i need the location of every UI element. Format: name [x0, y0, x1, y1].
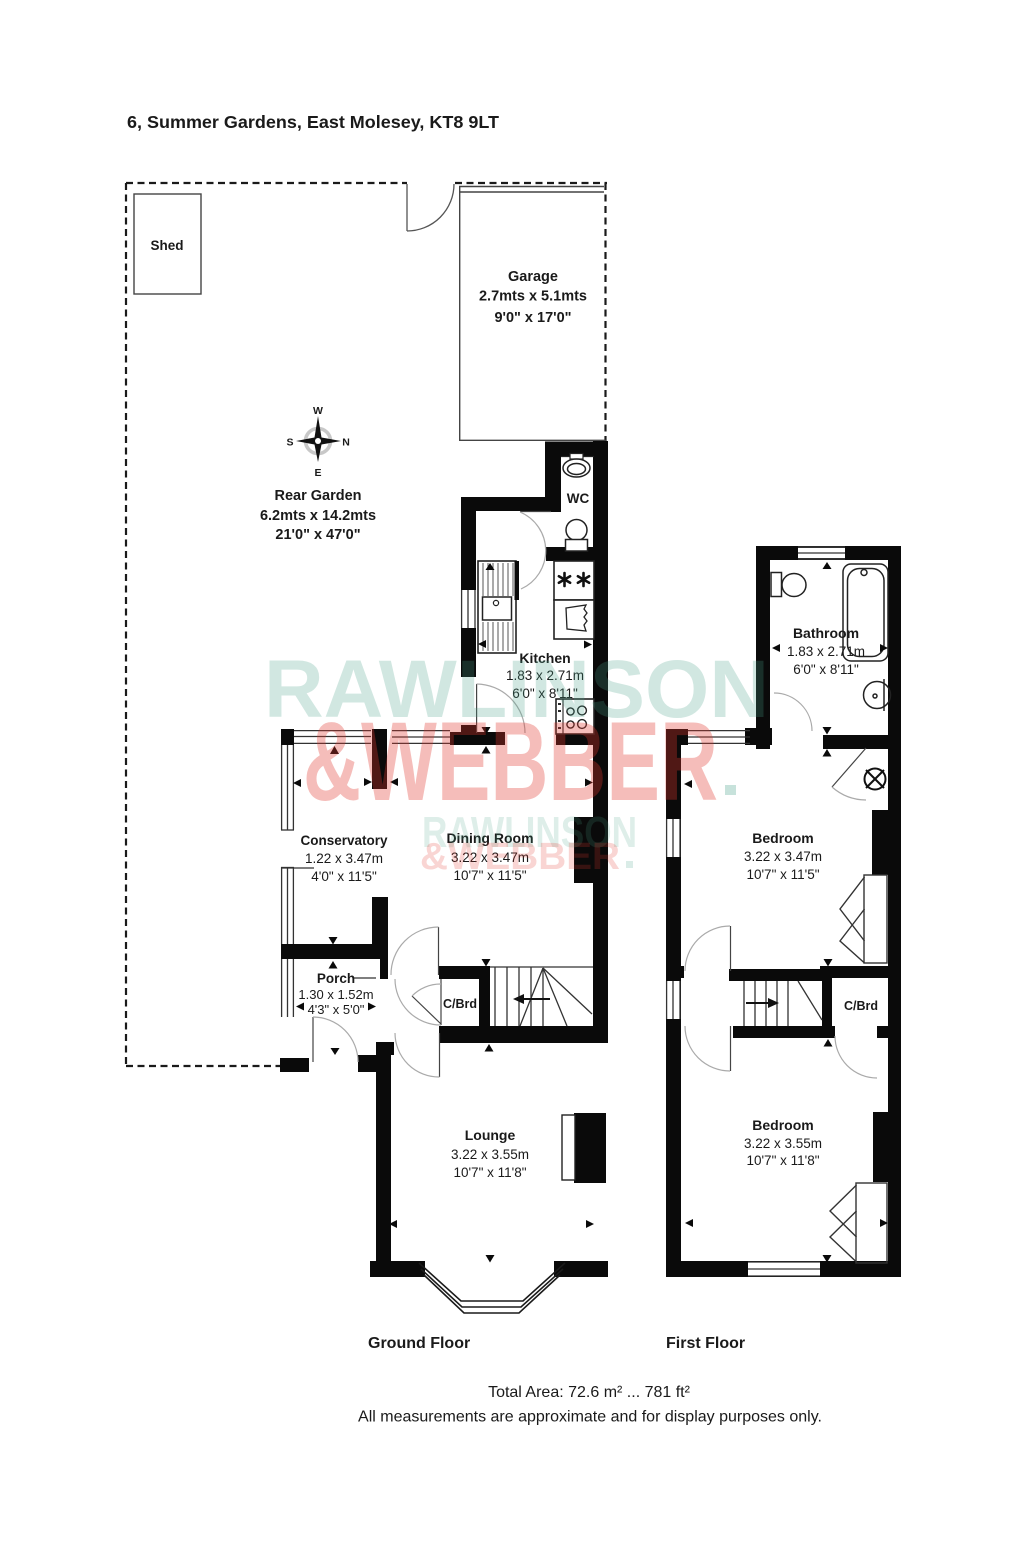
- svg-text:Shed: Shed: [150, 238, 183, 253]
- svg-text:First Floor: First Floor: [666, 1335, 745, 1352]
- svg-text:Bathroom: Bathroom: [793, 625, 859, 641]
- svg-text:1.30 x 1.52m: 1.30 x 1.52m: [298, 987, 373, 1002]
- svg-text:N: N: [342, 437, 350, 449]
- svg-text:Rear Garden: Rear Garden: [274, 488, 361, 504]
- svg-text:Total Area: 72.6 m² ... 781 ft: Total Area: 72.6 m² ... 781 ft²: [488, 1384, 691, 1401]
- svg-text:21'0" x 47'0": 21'0" x 47'0": [275, 527, 360, 543]
- svg-text:10'7" x 11'8": 10'7" x 11'8": [746, 1153, 819, 1168]
- svg-text:Garage: Garage: [508, 269, 558, 285]
- svg-text:Porch: Porch: [317, 971, 355, 986]
- svg-text:E: E: [314, 467, 321, 479]
- svg-text:Bedroom: Bedroom: [752, 830, 813, 846]
- svg-text:3.22 x 3.47m: 3.22 x 3.47m: [744, 849, 822, 864]
- svg-text:C/Brd: C/Brd: [844, 999, 878, 1013]
- svg-text:4'3" x 5'0": 4'3" x 5'0": [308, 1002, 365, 1017]
- svg-text:S: S: [286, 437, 293, 449]
- svg-text:WC: WC: [567, 491, 590, 506]
- svg-text:4'0" x 11'5": 4'0" x 11'5": [311, 869, 377, 884]
- svg-text:6, Summer Gardens, East Molese: 6, Summer Gardens, East Molesey, KT8 9LT: [127, 112, 499, 132]
- svg-text:Lounge: Lounge: [465, 1127, 516, 1143]
- svg-text:6.2mts x 14.2mts: 6.2mts x 14.2mts: [260, 508, 376, 524]
- svg-text:W: W: [313, 405, 323, 417]
- svg-text:Conservatory: Conservatory: [300, 833, 388, 848]
- svg-text:All measurements are approxima: All measurements are approximate and for…: [358, 1409, 822, 1426]
- svg-text:C/Brd: C/Brd: [443, 997, 477, 1011]
- svg-text:6'0" x 8'11": 6'0" x 8'11": [793, 662, 859, 677]
- svg-text:3.22 x 3.55m: 3.22 x 3.55m: [451, 1147, 529, 1162]
- svg-text:&WEBBER: &WEBBER: [420, 836, 620, 878]
- svg-text:9'0" x 17'0": 9'0" x 17'0": [494, 310, 571, 326]
- svg-text:10'7" x 11'8": 10'7" x 11'8": [453, 1165, 526, 1180]
- svg-text:Bedroom: Bedroom: [752, 1117, 813, 1133]
- svg-text:1.83 x 2.71m: 1.83 x 2.71m: [787, 644, 865, 659]
- svg-text:10'7" x 11'5": 10'7" x 11'5": [746, 867, 819, 882]
- svg-text:1.22 x 3.47m: 1.22 x 3.47m: [305, 851, 383, 866]
- svg-text:3.22 x 3.55m: 3.22 x 3.55m: [744, 1136, 822, 1151]
- svg-text:2.7mts x 5.1mts: 2.7mts x 5.1mts: [479, 289, 587, 305]
- svg-text:&WEBBER: &WEBBER: [303, 699, 718, 824]
- svg-text:Ground Floor: Ground Floor: [368, 1335, 470, 1352]
